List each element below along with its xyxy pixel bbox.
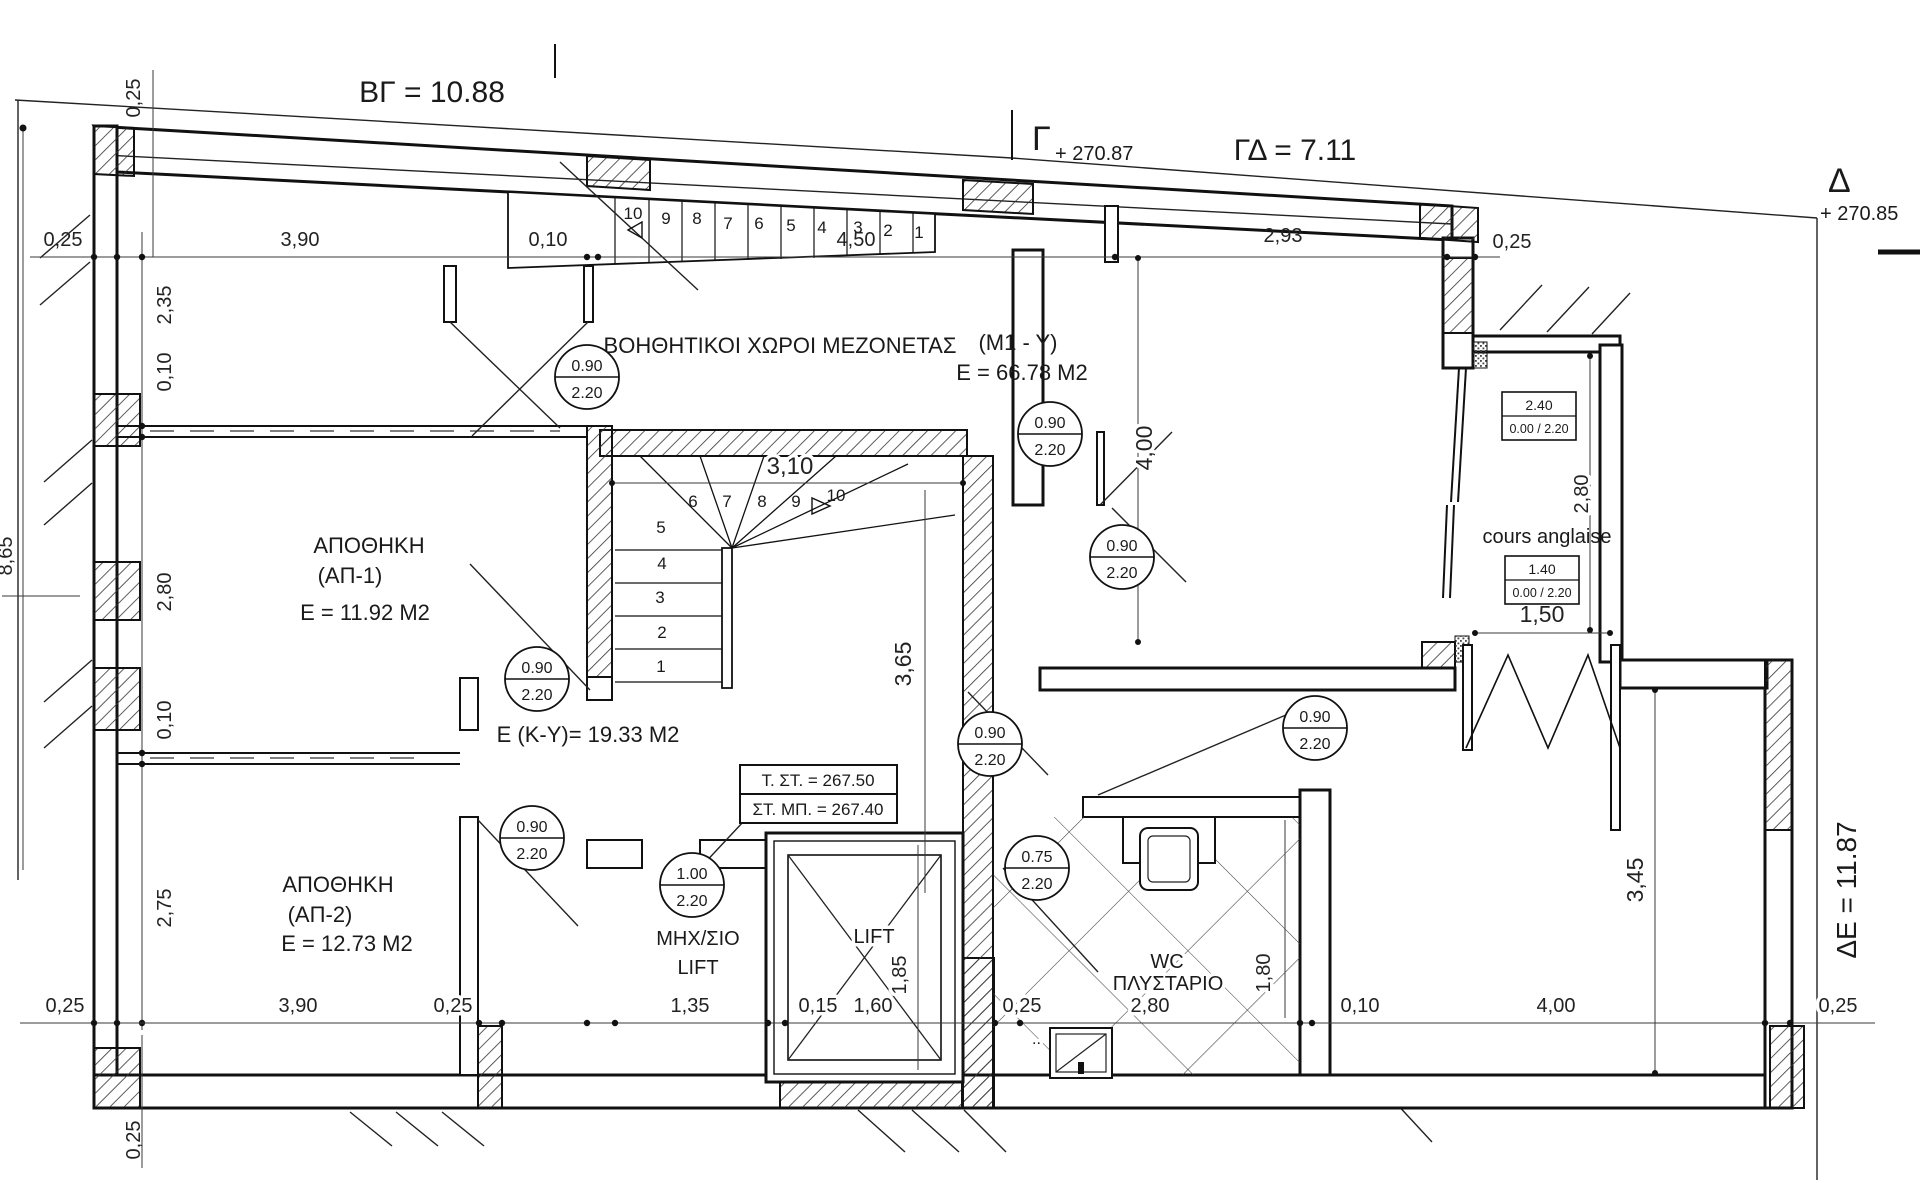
main-stair-numbers: 1 2 3 4 5 6 7 8 9 10 [655,486,845,676]
dim-345: 3,45 [1622,858,1648,903]
room-label-ap1-code: (ΑΠ-1) [318,563,383,588]
dim-bottom-5: 1,60 [854,995,893,1017]
dim-left-0: 2,35 [154,286,176,325]
dim-bg-label: ΒΓ = 10.88 [359,76,505,109]
room-label-m1-area: E = 66.78 M2 [956,360,1087,385]
dim-bottom-4: 0,15 [799,995,838,1017]
entry-steps-zigzag [1466,655,1620,748]
window-tag-2: 1.40 0.00 / 2.20 [1505,556,1579,604]
dim-bottom-7: 2,80 [1131,995,1170,1017]
step-number: 4 [817,218,826,237]
window-sill: 0.00 / 2.20 [1512,586,1571,600]
level-delta: + 270.85 [1820,203,1898,225]
dim-bottom-0: 0,25 [46,995,85,1017]
step-number: 5 [786,216,795,235]
washing-machine [1050,1028,1112,1078]
dim-top-5: 0,25 [1493,231,1532,253]
door-height: 2.20 [974,752,1005,769]
step-number: 8 [692,209,701,228]
level-gamma: + 270.87 [1055,143,1133,165]
step-number: 4 [657,554,666,573]
room-label-mhx-1: ΜΗΧ/ΣΙΟ [656,928,739,950]
dim-cours-280: 2,80 [1571,475,1593,514]
door-height: 2.20 [1299,736,1330,753]
door-height: 2.20 [1106,565,1137,582]
room-label-mhx-2: LIFT [677,957,718,979]
dim-top-0: 0,25 [44,229,83,251]
step-number: 3 [655,588,664,607]
room-label-wc-1: WC [1150,951,1183,973]
floor-plan-drawing: 10 9 8 7 6 5 4 3 2 1 1 2 3 4 5 [0,0,1920,1183]
door-height: 2.20 [516,846,547,863]
dim-400v: 4,00 [1131,426,1157,471]
point-gamma-label: Γ [1032,120,1051,158]
plan-canvas: 10 9 8 7 6 5 4 3 2 1 1 2 3 4 5 [0,0,1920,1183]
step-number: 1 [914,223,923,242]
room-label-m1-code: (M1 - Y) [978,330,1057,355]
level-stmp: ΣΤ. ΜΠ. = 267.40 [752,800,883,819]
door-width: 1.00 [676,866,707,883]
dim-365: 3,65 [890,642,916,687]
step-number: 6 [688,492,697,511]
point-delta-label: Δ [1828,162,1851,200]
wash-basin [1140,828,1198,890]
door-tag: 0.90 2.20 [555,345,619,409]
stair-rail [722,548,732,688]
dim-bottom-6: 0,25 [1003,995,1042,1017]
dim-left-4: 2,75 [154,889,176,928]
door-width: 0.90 [571,358,602,375]
door-tag: 0.75 2.20 [1005,836,1069,900]
room-label-wc-2: ΠΛΥΣΤΑΡΙΟ [1113,973,1224,995]
door-width: 0.75 [1021,849,1052,866]
step-number: 7 [722,492,731,511]
dim-top-corner: 0,25 [123,79,145,118]
step-number: 9 [791,492,800,511]
dim-left-total: 8,65 [0,537,17,576]
room-label-aux: ΒΟΗΘΗΤΙΚΟΙ ΧΩΡΟΙ ΜΕΖΟΝΕΤΑΣ [604,333,957,358]
level-tst: Τ. ΣΤ. = 267.50 [761,771,874,790]
door-width: 0.90 [1106,538,1137,555]
door-width: 0.90 [521,660,552,677]
door-tag: 0.90 2.20 [500,806,564,870]
dim-bottom-2: 0,25 [434,995,473,1017]
dim-top-1: 3,90 [281,229,320,251]
step-number: 9 [661,209,670,228]
room-label-cours: cours anglaise [1483,526,1612,548]
dim-gd-label: ΓΔ = 7.11 [1234,134,1357,167]
step-number: 2 [883,221,892,240]
room-label-ap1-name: ΑΠΟΘΗΚΗ [313,533,424,558]
room-label-ap2-code: (ΑΠ-2) [288,902,353,927]
dim-wc-180: 1,80 [1253,954,1275,993]
dim-top-2: 0,10 [529,229,568,251]
step-number: 2 [657,623,666,642]
door-height: 2.20 [521,687,552,704]
lift-shaft [766,833,963,1082]
step-number: 10 [827,486,846,505]
door-tag: 0.90 2.20 [958,712,1022,776]
step-number: 6 [754,214,763,233]
door-width: 0.90 [1299,709,1330,726]
dim-lift-185: 1,85 [889,956,911,995]
window-width: 1.40 [1528,561,1555,577]
door-height: 2.20 [1034,442,1065,459]
door-tag: 0.90 2.20 [1090,525,1154,589]
dim-left-3: 0,10 [154,701,176,740]
window-tag-1: 2.40 0.00 / 2.20 [1502,392,1576,440]
step-number: 10 [624,204,643,223]
door-height: 2.20 [676,893,707,910]
door-width: 0.90 [974,725,1005,742]
window-width: 2.40 [1525,397,1552,413]
door-width: 0.90 [516,819,547,836]
dim-bottom-1: 3,90 [279,995,318,1017]
door-tag: 0.90 2.20 [1018,402,1082,466]
step-number: 1 [656,657,665,676]
room-label-ap2-area: Ε = 12.73 Μ2 [281,931,412,956]
wc-dots: .. [1032,1031,1041,1048]
dim-top-3: 4,50 [837,229,876,251]
room-label-ky-area: Ε (Κ-Υ)= 19.33 Μ2 [497,722,680,747]
level-boxes: Τ. ΣΤ. = 267.50 ΣΤ. ΜΠ. = 267.40 [740,765,897,823]
step-number: 8 [757,492,766,511]
dim-bottom-10: 0,25 [1819,995,1858,1017]
window-sill: 0.00 / 2.20 [1509,422,1568,436]
door-height: 2.20 [1021,876,1052,893]
dim-de-label: ΔΕ = 11.87 [1831,821,1862,958]
room-label-ap1-area: Ε = 11.92 Μ2 [300,600,430,625]
dim-left-bottom: 0,25 [123,1121,145,1160]
dim-top-4: 2,93 [1264,225,1303,247]
window-tags: 2.40 0.00 / 2.20 1.40 0.00 / 2.20 [1502,392,1579,604]
dim-150: 1,50 [1520,601,1565,627]
dim-bottom-8: 0,10 [1341,995,1380,1017]
dim-bottom-3: 1,35 [671,995,710,1017]
door-height: 2.20 [571,385,602,402]
door-width: 0.90 [1034,415,1065,432]
dim-stair-width: 3,10 [767,453,814,480]
dim-left-1: 0,10 [154,353,176,392]
door-tag: 0.90 2.20 [1283,696,1347,760]
dim-bottom-9: 4,00 [1537,995,1576,1017]
dim-left-2: 2,80 [154,573,176,612]
room-label-ap2-name: ΑΠΟΘΗΚΗ [282,872,393,897]
step-number: 5 [656,518,665,537]
room-label-lift: LIFT [853,926,894,948]
door-tag: 1.00 2.20 [660,853,724,917]
step-number: 7 [723,214,732,233]
door-tag: 0.90 2.20 [505,647,569,711]
